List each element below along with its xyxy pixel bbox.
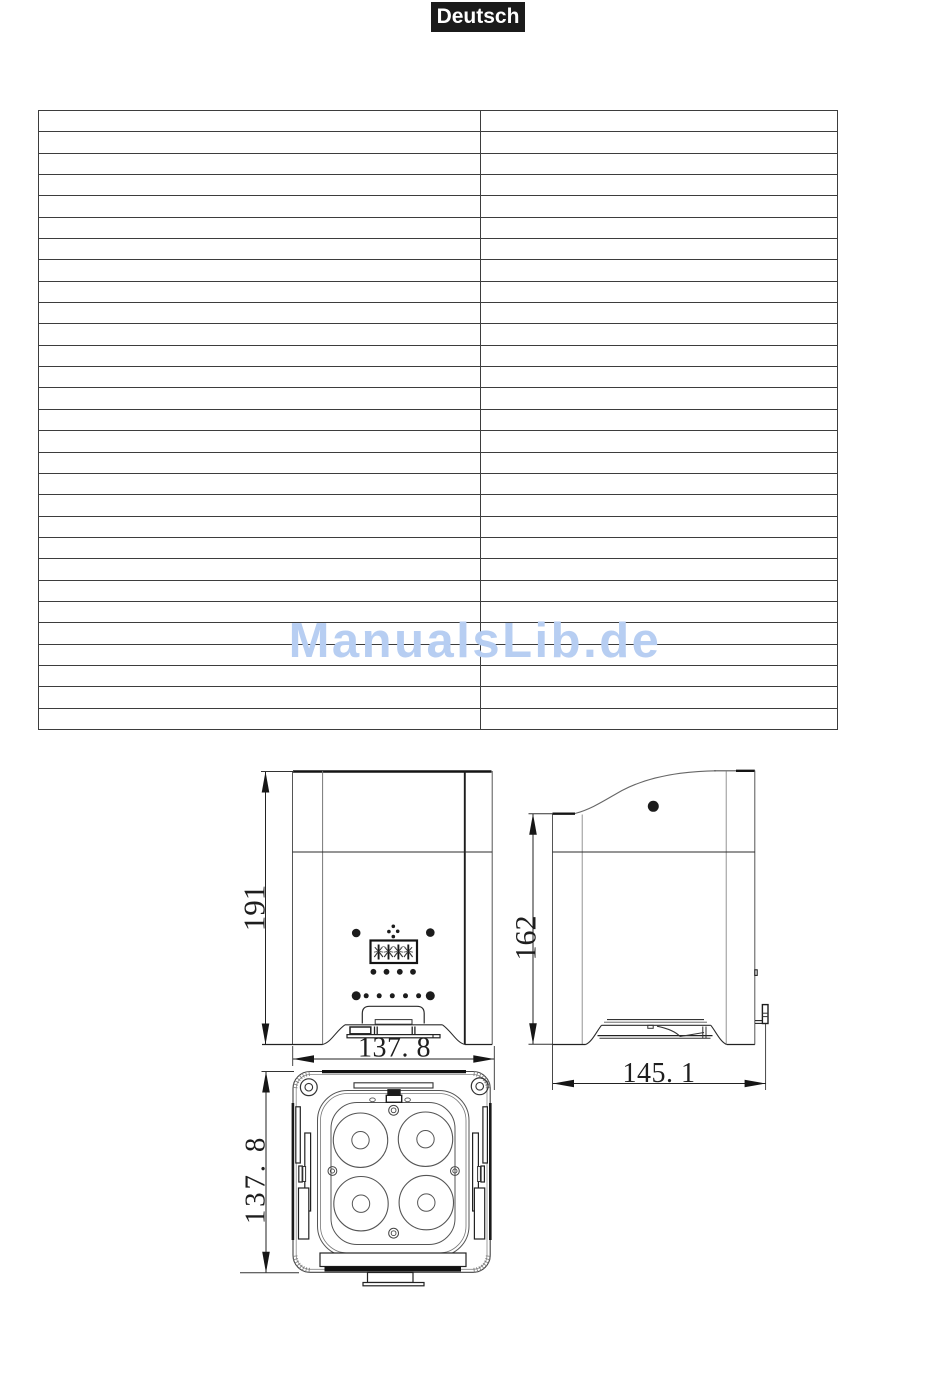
svg-text:191: 191 — [237, 885, 272, 932]
svg-text:162: 162 — [510, 916, 543, 961]
svg-text:137. 8: 137. 8 — [240, 1135, 272, 1224]
svg-text:137. 8: 137. 8 — [358, 1033, 431, 1064]
svg-text:145. 1: 145. 1 — [623, 1058, 696, 1089]
